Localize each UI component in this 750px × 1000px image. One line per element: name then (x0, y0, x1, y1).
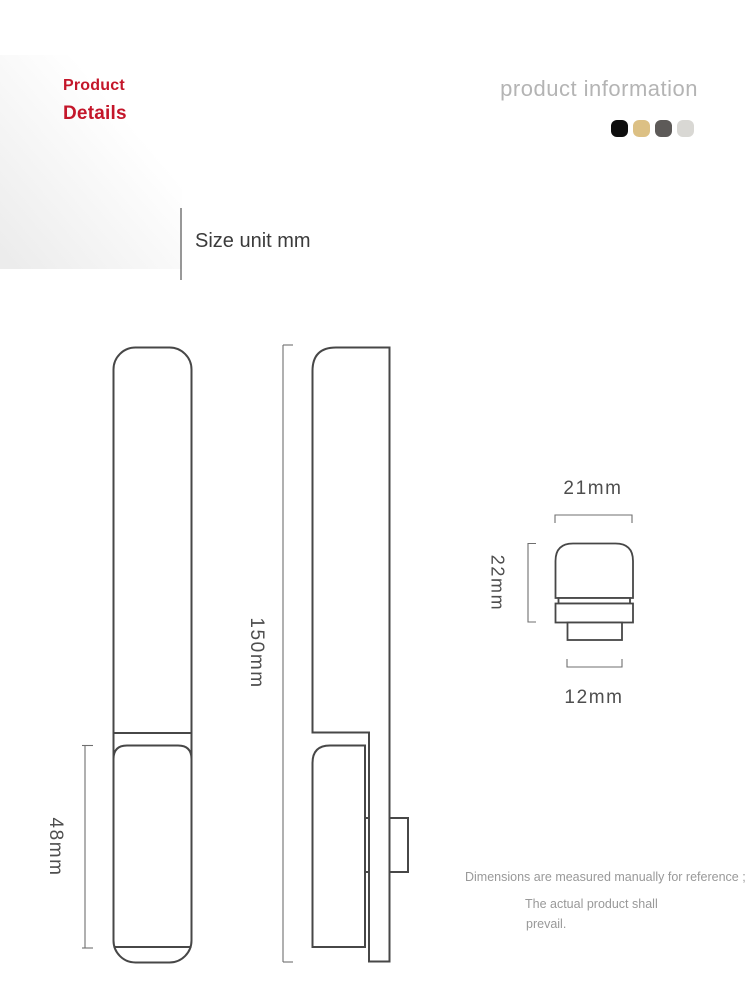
side-view-drawing (313, 348, 409, 962)
disclaimer-line2: The actual product shall (525, 897, 658, 911)
dimension-label-knob-width: 21mm (563, 478, 622, 500)
knob-collar (556, 604, 634, 623)
dimension-label-overall-height: 150mm (245, 617, 267, 688)
disclaimer-line1: Dimensions are measured manually for ref… (465, 870, 746, 884)
dimension-label-knob-stem-width: 12mm (564, 687, 623, 709)
knob-dome (556, 544, 634, 599)
dimension-label-grip-height: 48mm (44, 817, 66, 876)
dimension-bracket-21mm (555, 515, 632, 523)
dimension-label-knob-height: 22mm (487, 555, 508, 611)
dimension-bracket-22mm (528, 544, 536, 623)
disclaimer-line3: prevail. (526, 917, 566, 931)
knob-view-drawing (556, 544, 634, 641)
dimension-line-48mm (82, 746, 93, 949)
technical-drawing-svg (0, 0, 750, 1000)
dimension-line-150mm (283, 345, 293, 962)
dimension-bracket-12mm (567, 659, 622, 667)
product-detail-page: Product Details product information Size… (0, 0, 750, 1000)
front-view-drawing (114, 348, 192, 963)
front-view-outline (114, 348, 192, 963)
side-view-grip (313, 746, 366, 948)
knob-stem (568, 623, 623, 641)
